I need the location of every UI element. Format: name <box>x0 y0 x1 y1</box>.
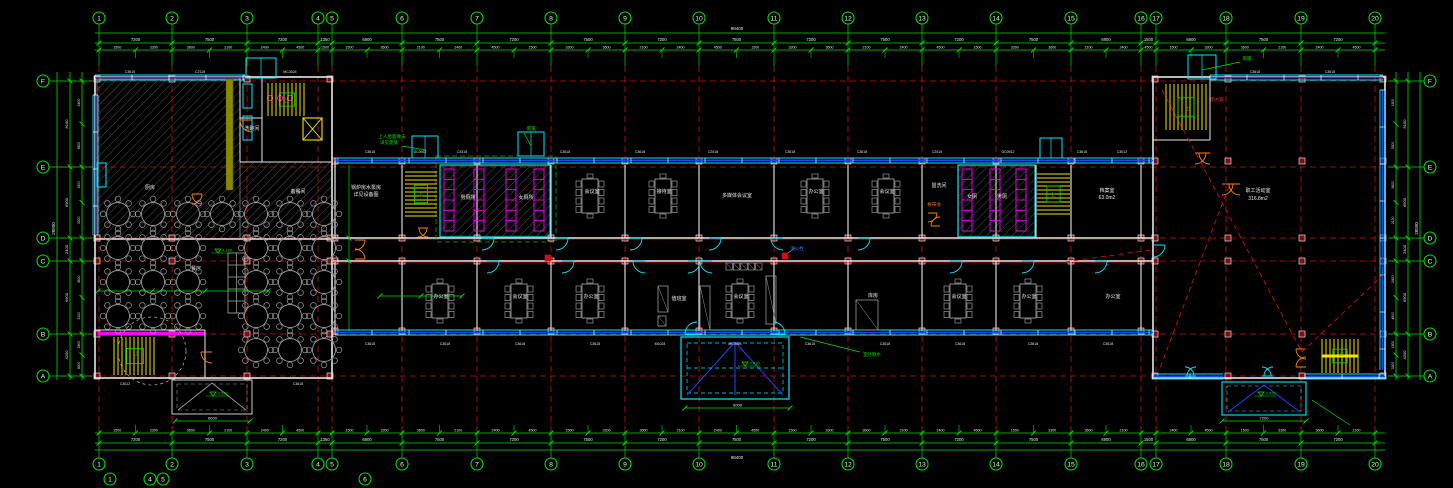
rect <box>582 284 598 318</box>
rect <box>599 295 604 301</box>
cad-text: 5 <box>330 15 334 22</box>
rect <box>955 279 961 283</box>
door-swing <box>1264 367 1273 376</box>
cad-text: 7200 <box>657 437 667 442</box>
cad-text: 2100 <box>1120 428 1128 432</box>
rect <box>432 284 448 318</box>
rect <box>576 286 581 292</box>
cad-text: 1500 <box>789 428 797 432</box>
cad-text: 12 <box>844 461 852 468</box>
rect <box>801 198 806 204</box>
cad-text: C3618 <box>785 150 795 154</box>
cad-text: C3618 <box>857 150 867 154</box>
rect <box>449 286 454 292</box>
rect <box>599 303 604 309</box>
rect <box>726 303 731 309</box>
level-marker: 4.180 <box>211 248 233 254</box>
cad-text: 3300 <box>826 428 834 432</box>
rect <box>505 312 510 318</box>
level-triangle <box>210 392 216 396</box>
cad-text: 4.180 <box>222 248 233 253</box>
cad-text: 6900 <box>1402 292 1407 302</box>
dining-table <box>238 298 274 334</box>
cad-text: 2400 <box>1170 428 1178 432</box>
cad-text: 办公室 <box>808 188 823 195</box>
cad-text: 6900 <box>362 37 372 42</box>
cad-text: 餐厅 <box>191 265 201 272</box>
cad-text: 上 <box>135 350 140 356</box>
rect <box>944 312 949 318</box>
cad-text: 2 <box>170 15 174 22</box>
column <box>1225 331 1231 337</box>
cad-text: E <box>1428 164 1433 171</box>
cad-text: 6 <box>400 461 404 468</box>
rect <box>576 181 581 187</box>
rect <box>967 312 972 318</box>
rect <box>437 319 443 323</box>
line <box>1202 62 1240 70</box>
rect <box>516 319 522 323</box>
cad-text: 7200 <box>131 37 141 42</box>
rect <box>1153 77 1385 378</box>
axis-bubble: C <box>1424 255 1436 267</box>
dining-table <box>170 230 206 266</box>
rect <box>505 295 510 301</box>
cad-text: 3600 <box>77 275 81 283</box>
cad-text: 3300 <box>381 428 389 432</box>
cad-text: 值班室 <box>671 295 686 302</box>
cad-text: 2400 <box>454 45 462 49</box>
rect <box>672 207 677 213</box>
rect <box>426 286 431 292</box>
rect <box>895 190 900 196</box>
cad-text: 档案室 <box>1099 187 1114 194</box>
rect <box>967 286 972 292</box>
door-swing <box>355 249 365 259</box>
rect <box>1037 286 1042 292</box>
door-swing <box>1229 184 1240 195</box>
dining-table <box>100 264 136 300</box>
rect <box>1014 303 1019 309</box>
cad-text: 2100 <box>640 45 648 49</box>
cad-text: 多媒体会议室 <box>722 192 752 199</box>
cad-text: 7200 <box>509 37 519 42</box>
cad-text: 上 <box>1339 350 1344 356</box>
cad-text: C3618 <box>590 342 600 346</box>
cad-text: 15 <box>1067 461 1075 468</box>
rect <box>528 303 533 309</box>
cad-text: C3012 <box>1117 150 1127 154</box>
cad-text: 20 <box>1371 15 1379 22</box>
axis-bubble: 10 <box>693 458 705 470</box>
axis-bubble: 12 <box>842 12 854 24</box>
cad-text: GC0912 <box>1001 150 1014 154</box>
cad-text: 雨篷 <box>1243 55 1252 62</box>
cad-text: 2400 <box>77 99 81 107</box>
rect <box>599 286 604 292</box>
axis-bubble: 19 <box>1295 12 1307 24</box>
level-marker: -0.020 <box>738 361 760 367</box>
cad-text: 1500 <box>1241 428 1249 432</box>
rect <box>505 286 510 292</box>
axis-bubble: 5 <box>157 473 169 485</box>
line <box>700 286 710 330</box>
axis-bubble: D <box>37 232 49 244</box>
cad-text: 3600 <box>1241 45 1249 49</box>
column <box>169 258 175 264</box>
cad-text: 3600 <box>187 428 195 432</box>
cad-text: C3618 <box>365 150 375 154</box>
rect <box>737 279 743 283</box>
conference-table <box>649 174 677 218</box>
rect <box>878 179 894 213</box>
cad-text: 3600 <box>826 45 834 49</box>
cad-text: 3600 <box>603 45 611 49</box>
rect <box>528 312 533 318</box>
cad-text: MC3024 <box>728 342 741 346</box>
cad-text: 12 <box>844 15 852 22</box>
line <box>212 383 246 410</box>
cad-text: 1500 <box>529 45 537 49</box>
rect <box>528 286 533 292</box>
hatch-layer <box>97 79 1035 239</box>
axis-bubble: 11 <box>768 12 780 24</box>
cad-text: 3600 <box>1316 428 1324 432</box>
rect <box>649 181 654 187</box>
cad-text: 13 <box>918 15 926 22</box>
cad-text: 1 <box>108 476 112 483</box>
cad-text: 3600 <box>640 428 648 432</box>
cad-text: 2400 <box>677 45 685 49</box>
axis-bubble: 4 <box>144 473 156 485</box>
rect <box>824 190 829 196</box>
axis-bubble: 14 <box>990 12 1002 24</box>
cad-text: 上 <box>1186 105 1191 111</box>
axis-bubble: B <box>1424 328 1436 340</box>
dining-table <box>170 298 206 334</box>
cad-text: C2415 <box>932 150 942 154</box>
cad-text: C3618 <box>1028 342 1038 346</box>
cad-text: 2400 <box>937 428 945 432</box>
rect <box>511 284 527 318</box>
cad-text: C3618 <box>880 342 890 346</box>
cad-text: M1024 <box>655 342 666 346</box>
axis-bubble: 8 <box>545 12 557 24</box>
rect <box>749 286 754 292</box>
cad-text: 上 <box>1051 191 1056 197</box>
dining-table <box>238 230 274 266</box>
cad-text: 1500 <box>1011 428 1019 432</box>
cad-text: 3300 <box>566 45 574 49</box>
axis-bubble: 11 <box>768 458 780 470</box>
rect <box>726 312 731 318</box>
cad-text: 6900 <box>1186 437 1196 442</box>
cad-text: 17 <box>1152 461 1160 468</box>
axis-bubble: 18 <box>1220 458 1232 470</box>
dining-table <box>135 298 171 334</box>
cad-text: 4500 <box>77 362 81 370</box>
cad-text: 7 <box>475 461 479 468</box>
rect <box>1014 312 1019 318</box>
rect <box>726 295 731 301</box>
cad-text: 3600 <box>863 428 871 432</box>
cad-text: C3618 <box>1250 70 1260 74</box>
cad-text: 1500 <box>1170 45 1178 49</box>
cad-text: 7500 <box>435 37 445 42</box>
cad-text: 室外散水 <box>863 351 881 358</box>
cad-text: 3 <box>245 461 249 468</box>
cad-text: 10 <box>695 15 703 22</box>
cad-text: 11 <box>770 461 777 468</box>
rect <box>749 295 754 301</box>
axis-bubble: 1 <box>93 12 105 24</box>
rect <box>587 279 593 283</box>
conference-table <box>944 279 972 323</box>
rect <box>672 181 677 187</box>
cad-text: 3300 <box>1048 428 1056 432</box>
axis-bubble: 4 <box>312 458 324 470</box>
rect <box>243 84 252 108</box>
cad-text: 2100 <box>863 45 871 49</box>
line <box>1160 186 1229 368</box>
cad-text: 雨篷 <box>527 125 536 132</box>
cad-text: 2400 <box>714 428 722 432</box>
cad-text: 职工活动室 <box>1245 187 1270 194</box>
cad-text: 4500 <box>1353 45 1361 49</box>
rect <box>883 214 889 218</box>
cad-text: 备餐间 <box>290 188 305 195</box>
cad-text: 2400 <box>1120 45 1128 49</box>
cad-text: 会议室 <box>733 293 748 300</box>
cad-text: 上 <box>419 191 424 197</box>
line <box>658 286 668 312</box>
cad-text: 13 <box>918 461 926 468</box>
cad-text: 5 <box>330 461 334 468</box>
cad-text: 7500 <box>1029 437 1039 442</box>
cad-text: 7500 <box>880 437 890 442</box>
rect <box>426 295 431 301</box>
cad-text: 4200 <box>64 350 69 360</box>
rect <box>1025 279 1031 283</box>
line <box>524 133 531 146</box>
cad-text: F <box>41 78 45 85</box>
axis-bubble: 7 <box>471 12 483 24</box>
rect <box>426 312 431 318</box>
cad-text: 2100 <box>1353 428 1361 432</box>
line <box>1228 385 1264 412</box>
rect <box>782 253 788 259</box>
cad-text: 6900 <box>362 437 372 442</box>
rect <box>1037 295 1042 301</box>
cad-text: 男厕 <box>997 194 1007 200</box>
column <box>1299 258 1305 264</box>
cad-text: 6 <box>363 476 367 483</box>
axis-bubble: D <box>1424 232 1436 244</box>
axis-bubble: 6 <box>359 473 371 485</box>
cad-text: 2100 <box>224 428 232 432</box>
cad-text: 16 <box>1137 15 1145 22</box>
rect <box>172 380 252 414</box>
cad-text: 详见建施 <box>380 139 398 146</box>
level-triangle <box>215 249 221 253</box>
cad-text: 4 <box>316 461 320 468</box>
axis-bubble: 17 <box>1150 458 1162 470</box>
rect <box>824 198 829 204</box>
cad-text: B <box>1428 331 1433 338</box>
column <box>1225 258 1231 264</box>
red-diagonals <box>1065 90 1383 368</box>
cad-text: 会议室 <box>512 293 527 300</box>
cad-text: 6900 <box>1101 37 1111 42</box>
cad-text: 7200 <box>131 437 141 442</box>
cad-text: 2100 <box>454 428 462 432</box>
rect <box>599 198 604 204</box>
cad-text: 2400 <box>1316 45 1324 49</box>
cad-text: 3300 <box>603 428 611 432</box>
rect <box>226 79 233 190</box>
cad-text: C3618 <box>440 342 450 346</box>
axis-bubble: 5 <box>326 458 338 470</box>
cad-text: 2400 <box>261 45 269 49</box>
rect <box>449 303 454 309</box>
cad-text: 4500 <box>492 45 500 49</box>
axis-bubble: 9 <box>619 12 631 24</box>
axis-bubble: C <box>37 255 49 267</box>
dining-table <box>272 264 308 300</box>
dining-table <box>135 264 171 300</box>
axis-bubble: 1 <box>104 473 116 485</box>
cad-text: 1500 <box>751 45 759 49</box>
rect <box>726 286 731 292</box>
cad-text: 4500 <box>296 45 304 49</box>
dining-table <box>100 298 136 334</box>
cad-text: 8100 <box>1402 119 1407 129</box>
cad-text: 上人屋面做法 <box>379 133 406 140</box>
axis-bubble: 5 <box>326 12 338 24</box>
rect <box>426 303 431 309</box>
rect <box>812 174 818 178</box>
rect <box>660 174 666 178</box>
cad-text: C2115 <box>195 70 205 74</box>
cad-text: 3300 <box>1391 362 1395 370</box>
cad-text: 7500 <box>205 37 215 42</box>
cad-text: C3618 <box>1103 342 1113 346</box>
rect <box>587 214 593 218</box>
axis-bubble: 20 <box>1369 458 1381 470</box>
rect <box>576 198 581 204</box>
line <box>733 263 739 270</box>
level-marker: -0.020 <box>206 391 228 397</box>
column <box>1225 158 1231 164</box>
axis-bubble: 2 <box>166 12 178 24</box>
rect <box>576 207 581 213</box>
cad-text: C3618 <box>1325 70 1335 74</box>
cad-text: 6900 <box>1186 37 1196 42</box>
cad-text: 2 <box>170 461 174 468</box>
cad-text: 2100 <box>900 428 908 432</box>
cad-text: C2418 <box>708 150 718 154</box>
rect <box>895 207 900 213</box>
rect <box>599 181 604 187</box>
rect <box>1014 295 1019 301</box>
cad-text: C3315 <box>457 150 467 154</box>
cad-text: 会议室 <box>584 188 599 195</box>
cad-text: 7200 <box>806 37 816 42</box>
cad-text: 19 <box>1297 461 1305 468</box>
cad-text: 2100 <box>1278 45 1286 49</box>
conference-table <box>576 279 604 323</box>
cad-text: C3618 <box>1077 150 1087 154</box>
rect <box>649 198 654 204</box>
axis-bubble: E <box>1424 161 1436 173</box>
rect <box>649 207 654 213</box>
cad-text: 9 <box>623 461 627 468</box>
cad-text: 3300 <box>1011 45 1019 49</box>
rect <box>944 303 949 309</box>
cad-text: 2400 <box>261 428 269 432</box>
cad-text: 库房 <box>868 292 878 299</box>
cad-text: 7200 <box>954 437 964 442</box>
line <box>741 263 747 270</box>
cad-text: 8 <box>549 461 553 468</box>
cad-text: 办公室 <box>1105 293 1120 300</box>
line <box>735 342 783 395</box>
dining-table <box>306 332 342 368</box>
cad-text: C <box>41 258 46 265</box>
cad-text: 3300 <box>346 45 354 49</box>
cad-text: 7200 <box>278 437 288 442</box>
rect <box>505 303 510 309</box>
axis-bubble: F <box>1424 75 1436 87</box>
cad-text: 6900 <box>1402 197 1407 207</box>
cad-text: 4500 <box>714 45 722 49</box>
cad-text: 5 <box>161 476 165 483</box>
dining-table <box>272 298 308 334</box>
cad-text: 雨水管 <box>1210 96 1224 103</box>
cad-text: 女厕所 <box>518 194 533 201</box>
conference-table <box>726 279 754 323</box>
line <box>687 342 735 395</box>
cad-text: 8100 <box>64 119 69 129</box>
cad-text: 4500 <box>1145 45 1153 49</box>
cad-text: C3618 <box>293 382 303 386</box>
rect <box>749 312 754 318</box>
cad-text: 3300 <box>1205 45 1213 49</box>
cad-text: 2100 <box>1085 45 1093 49</box>
cad-text: 男厕所 <box>460 194 475 201</box>
cad-text: 19 <box>1297 15 1305 22</box>
cad-text: 7500 <box>583 37 593 42</box>
cad-text: 9 <box>623 15 627 22</box>
cad-text: 2100 <box>417 45 425 49</box>
axis-bubble: 13 <box>916 12 928 24</box>
cad-text: B <box>41 331 46 338</box>
cad-text: 4500 <box>937 45 945 49</box>
cad-text: 7200 <box>806 437 816 442</box>
cad-text: 2100 <box>77 312 81 320</box>
rect <box>528 295 533 301</box>
conference-table <box>426 279 454 323</box>
rect <box>955 319 961 323</box>
door-swing <box>201 352 212 363</box>
cad-text: 详见设备图 <box>353 191 378 198</box>
door-swing <box>1187 367 1196 376</box>
dining-table <box>306 230 342 266</box>
rect <box>576 303 581 309</box>
cad-text: 7200 <box>1260 416 1270 421</box>
line <box>658 316 666 326</box>
line <box>1312 400 1350 425</box>
